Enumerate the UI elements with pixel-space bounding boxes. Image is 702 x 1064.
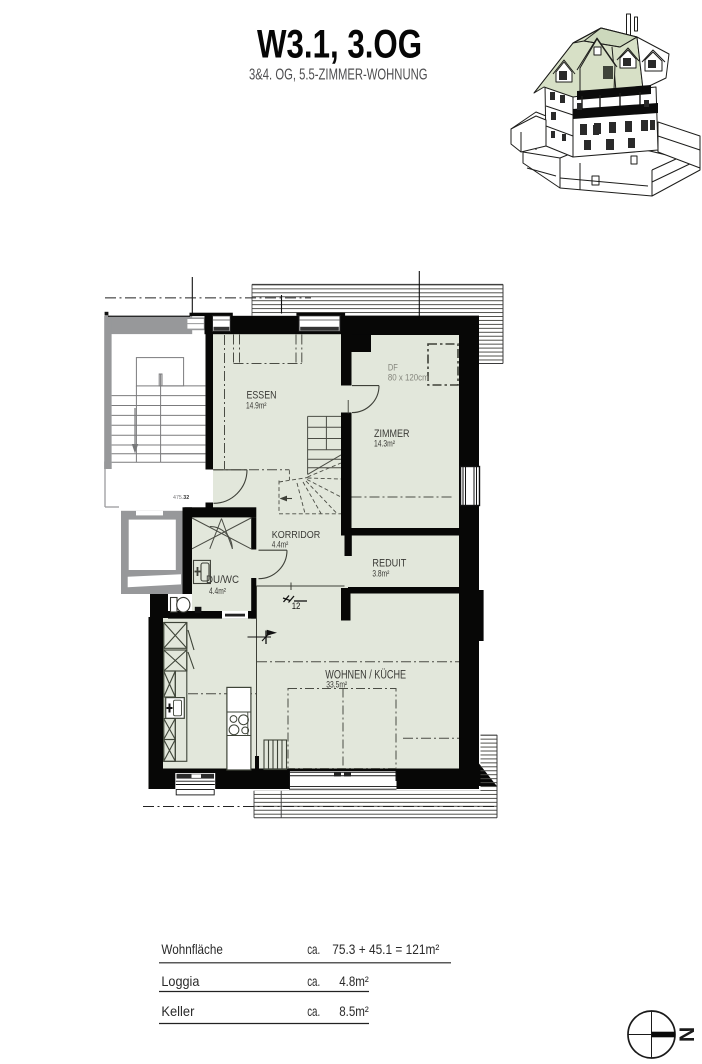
svg-text:ca.: ca. xyxy=(307,941,320,957)
svg-text:14.3m²: 14.3m² xyxy=(374,439,395,449)
svg-text:ca.: ca. xyxy=(307,973,320,989)
svg-text:Loggia: Loggia xyxy=(161,973,199,989)
svg-text:3.8m²: 3.8m² xyxy=(372,569,389,579)
svg-text:N: N xyxy=(675,1027,698,1042)
svg-text:80 x 120cm: 80 x 120cm xyxy=(388,373,429,384)
svg-text:12: 12 xyxy=(292,601,301,611)
svg-text:4.8m²: 4.8m² xyxy=(339,973,369,989)
svg-text:4.4m²: 4.4m² xyxy=(209,586,226,596)
svg-text:4.4m²: 4.4m² xyxy=(272,540,289,550)
svg-text:75.3 + 45.1 = 121m²: 75.3 + 45.1 = 121m² xyxy=(332,941,439,957)
svg-text:Keller: Keller xyxy=(161,1003,194,1019)
svg-text:8.5m²: 8.5m² xyxy=(339,1003,369,1019)
svg-text:33.5m²: 33.5m² xyxy=(326,680,347,690)
svg-text:DU/WC: DU/WC xyxy=(206,574,239,586)
svg-text:475.32: 475.32 xyxy=(173,495,189,501)
svg-text:3&4. OG, 5.5-ZIMMER-WOHNUNG: 3&4. OG, 5.5-ZIMMER-WOHNUNG xyxy=(249,67,428,84)
svg-text:Wohnfläche: Wohnfläche xyxy=(161,941,223,957)
svg-text:W3.1, 3.OG: W3.1, 3.OG xyxy=(257,23,422,67)
svg-text:14.9m²: 14.9m² xyxy=(246,400,267,410)
svg-text:ca.: ca. xyxy=(307,1003,320,1019)
